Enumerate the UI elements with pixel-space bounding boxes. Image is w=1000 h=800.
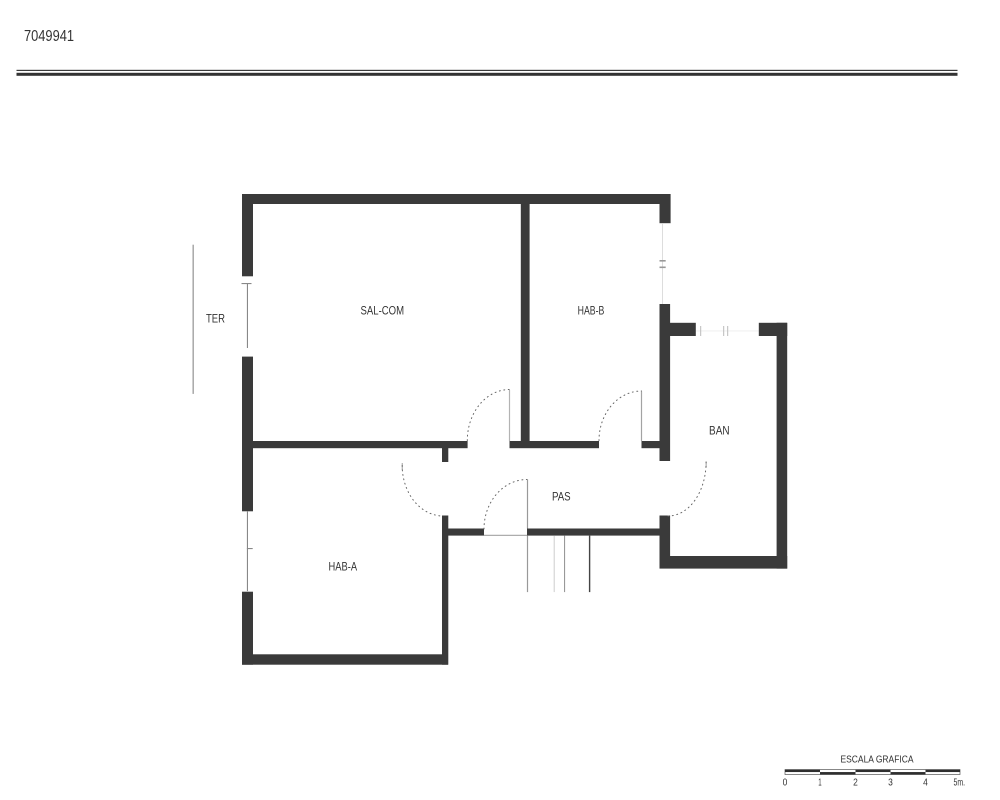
svg-text:TER: TER — [206, 312, 225, 326]
svg-text:SAL-COM: SAL-COM — [361, 304, 405, 318]
svg-text:7049941: 7049941 — [24, 28, 74, 45]
svg-text:ESCALA GRAFICA: ESCALA GRAFICA — [841, 755, 914, 766]
svg-text:3: 3 — [888, 777, 893, 789]
svg-text:0: 0 — [783, 777, 788, 789]
svg-text:1: 1 — [818, 777, 821, 789]
svg-text:4: 4 — [923, 777, 928, 789]
svg-text:HAB-B: HAB-B — [578, 304, 605, 318]
svg-text:HAB-A: HAB-A — [329, 560, 358, 574]
svg-text:2: 2 — [853, 777, 858, 789]
svg-text:PAS: PAS — [552, 490, 571, 504]
svg-text:5m.: 5m. — [954, 777, 966, 789]
svg-text:BAN: BAN — [709, 424, 730, 438]
